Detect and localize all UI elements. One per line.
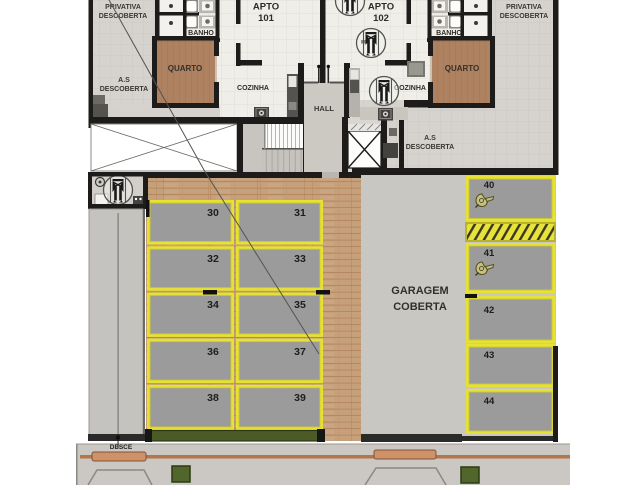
- svg-text:A.S: A.S: [118, 77, 130, 84]
- svg-text:102: 102: [373, 13, 389, 24]
- svg-text:DESCOBERTA: DESCOBERTA: [406, 144, 454, 151]
- svg-text:38: 38: [207, 392, 219, 404]
- svg-text:36: 36: [207, 346, 219, 358]
- svg-text:PRIVATIVA: PRIVATIVA: [105, 4, 141, 11]
- svg-text:DESCOBERTA: DESCOBERTA: [99, 13, 147, 20]
- svg-text:33: 33: [294, 253, 306, 265]
- svg-text:QUARTO: QUARTO: [168, 64, 203, 73]
- svg-text:PRIVATIVA: PRIVATIVA: [506, 4, 542, 11]
- svg-text:BANHO: BANHO: [436, 30, 462, 37]
- svg-text:101: 101: [258, 13, 275, 24]
- svg-text:31: 31: [294, 207, 306, 219]
- svg-text:DESCOBERTA: DESCOBERTA: [100, 86, 148, 93]
- svg-text:37: 37: [294, 346, 306, 358]
- svg-text:A.S: A.S: [424, 135, 436, 142]
- svg-text:COZINHA: COZINHA: [237, 85, 269, 92]
- svg-text:30: 30: [207, 207, 219, 219]
- svg-text:40: 40: [484, 180, 495, 191]
- svg-text:42: 42: [484, 305, 495, 316]
- svg-text:APTO: APTO: [253, 2, 279, 13]
- svg-text:DESCOBERTA: DESCOBERTA: [500, 13, 548, 20]
- svg-text:HALL: HALL: [314, 104, 334, 113]
- svg-text:39: 39: [294, 392, 306, 404]
- svg-text:35: 35: [294, 299, 306, 311]
- svg-text:32: 32: [207, 253, 219, 265]
- svg-text:QUARTO: QUARTO: [445, 64, 480, 73]
- svg-text:BANHO: BANHO: [188, 30, 214, 37]
- svg-text:DESCE: DESCE: [110, 444, 133, 451]
- svg-text:34: 34: [207, 299, 219, 311]
- svg-text:44: 44: [484, 396, 495, 407]
- svg-text:43: 43: [484, 350, 495, 361]
- svg-text:GARAGEM: GARAGEM: [391, 285, 448, 297]
- svg-text:COBERTA: COBERTA: [393, 301, 447, 313]
- svg-text:41: 41: [484, 248, 495, 259]
- svg-text:APTO: APTO: [368, 2, 394, 13]
